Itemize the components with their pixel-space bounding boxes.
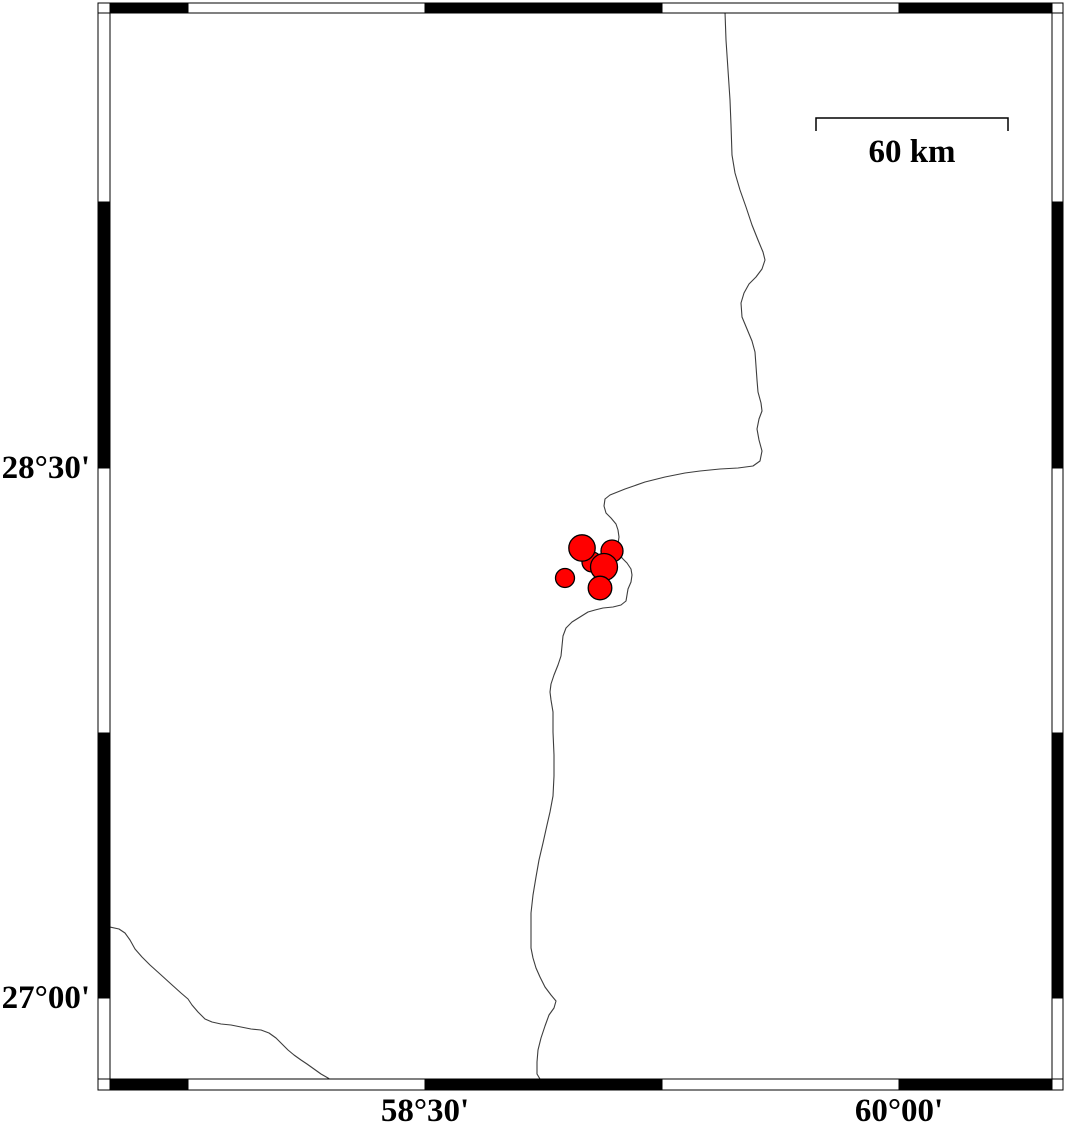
frame-segment-left bbox=[98, 3, 110, 202]
frame-segment-bottom bbox=[188, 1079, 425, 1090]
epicenter-marker bbox=[569, 535, 595, 561]
latitude-label-27-00: 27°00' bbox=[0, 980, 90, 1016]
frame-segment-bottom bbox=[662, 1079, 899, 1090]
frame-segment-right bbox=[1052, 202, 1063, 468]
map-figure: 28°30' 27°00' 58°30' 60°00' 60 km bbox=[0, 0, 1066, 1127]
frame-segment-top bbox=[425, 3, 662, 13]
frame-segment-right bbox=[1052, 3, 1063, 202]
frame-segment-bottom bbox=[899, 1079, 1052, 1090]
southwest-coastline bbox=[110, 927, 332, 1081]
frame-segment-right bbox=[1052, 733, 1063, 998]
epicenter-marker bbox=[556, 569, 575, 588]
frame-segment-top bbox=[110, 3, 188, 13]
longitude-label-60-00: 60°00' bbox=[819, 1093, 979, 1127]
frame-segment-top bbox=[899, 3, 1052, 13]
frame-segment-left bbox=[98, 202, 110, 468]
frame-segment-left bbox=[98, 733, 110, 998]
frame-segment-bottom bbox=[425, 1079, 662, 1090]
frame-segment-top bbox=[662, 3, 899, 13]
scale-bar bbox=[816, 118, 1008, 131]
frame-segment-left bbox=[98, 998, 110, 1090]
frame-segment-right bbox=[1052, 998, 1063, 1090]
longitude-label-58-30: 58°30' bbox=[345, 1093, 505, 1127]
epicenter-marker bbox=[588, 576, 612, 600]
frame-segment-top bbox=[188, 3, 425, 13]
frame-segment-left bbox=[98, 468, 110, 733]
latitude-label-28-30: 28°30' bbox=[0, 450, 90, 486]
scale-bar-label: 60 km bbox=[832, 134, 992, 170]
frame-segment-right bbox=[1052, 468, 1063, 733]
frame-segment-bottom bbox=[110, 1079, 188, 1090]
main-coastline bbox=[531, 12, 765, 1088]
